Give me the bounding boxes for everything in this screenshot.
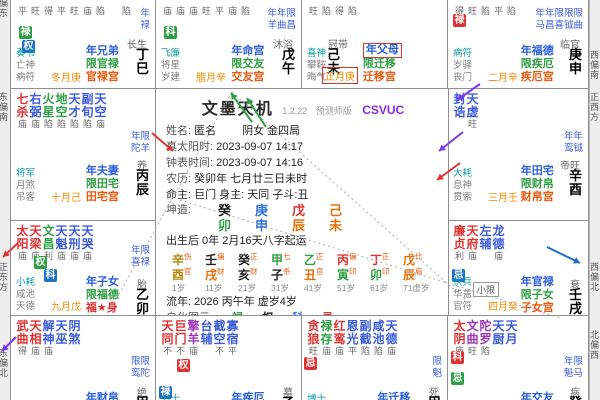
palace-name-labels: 年财帛 <box>86 392 119 400</box>
gods-list: 奏书亡神病符 <box>16 48 35 84</box>
gods-list: 飞廉将星岁建 <box>161 48 180 84</box>
brightness-row: 旺陷得陷 <box>307 6 359 17</box>
app-title-row: 文墨天机 1.2.22 预测师版 CSVUC <box>166 95 440 119</box>
flow-month-label: 二月辛 <box>488 69 518 84</box>
stem-branch-label: 辛酉 <box>568 169 583 197</box>
star-list: 七右火地天副天杀弼星空才旬空庙庙陷陷陷陷庙 <box>16 93 107 130</box>
compass-strip-right: 西偏南正西方西偏北北偏西 <box>589 0 600 400</box>
kunzao-stems-row: 坤造:癸庚戊己 <box>166 203 440 218</box>
star-row: 贞府辅德 <box>453 238 505 251</box>
star-list: 太天文天天天阳梁昌魁刑哭庙庙利庙庙庙 <box>16 225 94 262</box>
compass-label: 正东方 <box>0 262 10 292</box>
flow-month-label: 冬月庚 <box>51 69 81 84</box>
star-row: 同门羊辅空宿 <box>161 333 239 346</box>
compass-label: 西偏南 <box>590 50 600 80</box>
transform-badge-忌: 忌 <box>304 357 317 370</box>
app-version: 1.2.22 <box>282 106 307 116</box>
star-list: 贪禄红恩副咸天狼存鸾光截池德旺庙庙平陷陷庙 <box>307 320 398 357</box>
brightness-row: 不不庙 不平 <box>161 346 239 357</box>
brightness-row: 旺 <box>453 119 479 130</box>
transform-badge-禄: 禄 <box>453 14 466 27</box>
palace-name-labels: 年迁移 <box>377 392 410 400</box>
luck-pillar: 辛伤酉官 <box>172 251 205 281</box>
palace-shen[interactable]: 得旺陷平陷禄年年限限限马昌喜钺曲临官庚申病符岁驿丧门二月辛年福德限疾厄疾厄宫 <box>447 0 589 89</box>
luck-pillar: 甲七子杀 <box>271 251 304 281</box>
brightness-row: 旺庙庙平陷陷庙 <box>307 346 398 357</box>
app-code: CSVUC <box>362 103 404 117</box>
minor-stars: 限限鸾陀 <box>131 356 150 380</box>
minor-stars: 年限魁马 <box>564 356 583 380</box>
gods-list: 博士 <box>307 394 326 400</box>
star-list: 封天诰虚 旺 <box>453 93 479 130</box>
palace-wei[interactable]: 旺陷得陷冠带己未喜神攀鞍晦气正月庚年父母限迁移迁移宫 <box>301 0 448 89</box>
luck-pillar: 癸正亥财 <box>238 251 271 281</box>
star-row: 阳梁昌魁刑哭 <box>16 238 94 251</box>
gods-list: 伏兵华盖官符 <box>453 277 472 313</box>
compass-label: 西偏北 <box>590 262 600 292</box>
compass-label: 东偏北 <box>0 348 10 378</box>
flow-month-label: 三月壬 <box>488 189 518 204</box>
star-row: 狼存鸾光截池德 <box>307 333 398 346</box>
transform-badge-科: 科 <box>451 351 464 364</box>
stem-branch-label: 丙辰 <box>135 169 150 197</box>
luck-pillar: 丙偏寅印 <box>337 251 370 281</box>
brightness-row: 得庙庙 <box>16 346 81 357</box>
palace-mao[interactable]: 太天文天天天阳梁昌魁刑哭庙庙利庙庙庙权科年限喜禄胎乙卯小耗咸池天德九月戊年子女限… <box>10 220 156 316</box>
minor-stars: 限魁 <box>432 356 442 380</box>
star-list: 庙庙庙旺平庙陷 <box>161 6 252 17</box>
gods-list: 将军月煞吊客 <box>16 168 35 204</box>
compass-label: 北偏西 <box>590 330 600 360</box>
stem-branch-label: 甲寅 <box>135 396 150 400</box>
brightness-row: 庙庙庙旺平庙陷 <box>161 6 252 17</box>
luck-pillar: 丁正卯印 <box>370 251 403 281</box>
palace-name-labels: 年子女限福德福★身 <box>86 276 119 315</box>
compass-label: 正西方 <box>590 92 600 122</box>
palace-name-labels: 年夫妻限田宅田宅宫 <box>86 165 119 204</box>
flow-month-label: 腊月辛 <box>196 69 226 84</box>
palace-wu[interactable]: 庙庙庙旺平庙陷科年年限羊曲昌沐浴戊午飞廉将星岁建腊月辛年命宫限交友交友宫 <box>155 0 302 89</box>
clock-time-line: 钟表时间: 2023-09-07 14:16 <box>166 155 440 171</box>
flow-month-label: 正月庚 <box>322 67 358 84</box>
palace-hai[interactable]: 太文陀天天阴曲罗厨月庙旺陷科忌年限魁马病癸亥年交友 <box>447 315 589 400</box>
palace-you[interactable]: 封天诰虚 旺年年鸾钺帝旺辛酉大耗息神贯索三月壬年田宅限财帛财帛宫 <box>447 88 589 221</box>
solar-time-line: 真太阳时: 2023-09-07 14:17 <box>166 139 440 155</box>
transform-badge-权: 权 <box>34 256 47 269</box>
palace-name-labels: 年官禄限子女子女宫 <box>521 276 554 315</box>
star-row: 杀弼星空才旬空 <box>16 106 107 119</box>
luck-pillar: 乙正丑官 <box>304 251 337 281</box>
palace-si[interactable]: 平旺得平旺庙陷 陷禄权年禄长生丁巳奏书亡神病符冬月庚年兄弟限官禄官禄宫 <box>10 0 156 89</box>
transform-badge-科: 科 <box>44 269 57 282</box>
star-row: 诰虚 <box>453 106 479 119</box>
transform-badge-科: 科 <box>164 26 177 39</box>
minor-stars: 年限喜禄 <box>131 245 150 269</box>
stem-branch-label: 壬戌 <box>568 288 583 316</box>
minor-stars: 年年限羊曲昌 <box>267 8 296 32</box>
transform-badge-忌: 忌 <box>451 372 464 385</box>
star-list: 旺陷得陷 <box>307 6 359 17</box>
star-list: 廉天左龙贞府辅德利庙 庙 <box>453 225 505 262</box>
brightness-row: 庙庙利庙庙庙 <box>16 251 94 262</box>
compass-label: 东偏南 <box>0 92 10 122</box>
stem-branch-label: 乙卯 <box>135 288 150 316</box>
zihua-legend: 自化图示:→禄→权→科→忌 <box>166 310 440 316</box>
star-row: 曲相神巫煞 <box>16 333 81 346</box>
minor-stars: 年禄 <box>140 8 150 32</box>
star-list: 天巨擎台截寡同门羊辅空宿不不庙 不平 <box>161 320 239 357</box>
star-list: 武天解天阴曲相神巫煞得庙庙 <box>16 320 81 357</box>
xiaoxian-label: 小限 <box>473 282 499 297</box>
palace-zi[interactable]: 贪禄红恩副咸天狼存鸾光截池德旺庙庙平陷陷庙忌限魁死甲子博士年迁移 <box>301 315 448 400</box>
stem-branch-label: 乙丑 <box>281 396 296 400</box>
flow-month-label: 四月癸 <box>488 298 518 313</box>
brightness-row: 利庙 庙 <box>453 251 505 262</box>
transform-badge-权: 权 <box>177 359 190 372</box>
palace-chou[interactable]: 天巨擎台截寡同门羊辅空宿不不庙 不平权禄墓乙丑力士年疾厄 <box>155 315 302 400</box>
app-edition: 预测师版 <box>316 106 352 116</box>
palace-xu[interactable]: 廉天左龙贞府辅德利庙 庙忌衰壬戌伏兵华盖官符四月癸年官禄限子女子女宫小限 <box>447 220 589 316</box>
star-row: 阴曲罗厨月 <box>453 333 518 346</box>
stem-branch-label: 癸亥 <box>568 396 583 400</box>
brightness-row: 平旺得平旺庙陷 陷 <box>16 6 133 17</box>
palace-yin[interactable]: 武天解天阴曲相神巫煞得庙庙限限鸾陀绝甲寅年财帛 <box>10 315 156 400</box>
lunar-date-line: 农历: 癸卯年 七月廿三日未时 <box>166 171 440 187</box>
flow-month-label: 十月己 <box>51 189 81 204</box>
chart-info-panel: 文墨天机 1.2.22 预测师版 CSVUC 姓名: 匿名阴女 金四局真太阳时:… <box>155 88 449 316</box>
lords-line: 命主: 巨门 身主: 天同 子斗:丑 <box>166 187 440 203</box>
minor-stars: 年限陀羊 <box>131 131 150 155</box>
palace-name-labels: 年交友 <box>521 392 554 400</box>
luck-pillar: 戊比辰肩 <box>403 251 436 281</box>
palace-chen[interactable]: 七右火地天副天杀弼星空才旬空庙庙陷陷陷陷庙年限陀羊养丙辰将军月煞吊客十月己年夫妻… <box>10 88 156 221</box>
transform-badge-禄: 禄 <box>19 26 32 39</box>
ziwei-chart-board: 南偏东东偏南正东方东偏北 西偏南正西方西偏北北偏西 平旺得平旺庙陷 陷禄权年禄长… <box>0 0 600 400</box>
flow-month-label: 九月戊 <box>51 298 81 313</box>
name-line: 姓名: 匿名阴女 金四局 <box>166 123 440 139</box>
palace-name-labels: 年兄弟限官禄官禄宫 <box>86 45 119 84</box>
palace-name-labels: 年父母限迁移迁移宫 <box>363 43 402 84</box>
palace-name-labels: 年福德限疾厄疾厄宫 <box>521 45 554 84</box>
luck-pillars-row: 辛伤酉官壬偏戌财癸正亥财甲七子杀乙正丑官丙偏寅印丁正卯印戊比辰肩 <box>172 251 440 281</box>
luck-pillar-ages: 1岁11岁21岁31岁41岁51岁61岁71虚岁 <box>172 282 440 294</box>
palace-name-labels: 年命宫限交友交友宫 <box>231 45 264 84</box>
birth-note-line: 出生后 0年 2月16天八字起运 <box>166 233 440 249</box>
stem-branch-label: 戊午 <box>281 48 296 76</box>
minor-stars: 年年鸾钺 <box>564 131 583 155</box>
app-title: 文墨天机 <box>202 101 274 118</box>
stem-branch-label: 庚申 <box>568 48 583 76</box>
minor-stars: 年年限限限马昌喜钺曲 <box>535 8 583 32</box>
star-list: 平旺得平旺庙陷 陷 <box>16 6 133 17</box>
flow-year-line: 流年: 2026 丙午年 虚岁4岁 <box>166 294 440 310</box>
luck-pillar: 壬偏戌财 <box>205 251 238 281</box>
palace-name-labels: 年田宅限财帛财帛宫 <box>521 165 554 204</box>
brightness-row: 庙庙陷陷陷陷庙 <box>16 119 107 130</box>
palace-name-labels: 年疾厄 <box>231 392 264 400</box>
stem-branch-label: 甲子 <box>427 396 442 400</box>
gods-list: 大耗息神贯索 <box>453 168 472 204</box>
gods-list: 力士 <box>161 394 180 400</box>
compass-label: 南偏东 <box>0 0 10 18</box>
gods-list: 小耗咸池天德 <box>16 277 35 313</box>
gods-list: 病符岁驿丧门 <box>453 48 472 84</box>
stem-branch-label: 丁巳 <box>135 48 150 76</box>
kunzao-branches-row: 卯申辰未 <box>166 218 440 233</box>
